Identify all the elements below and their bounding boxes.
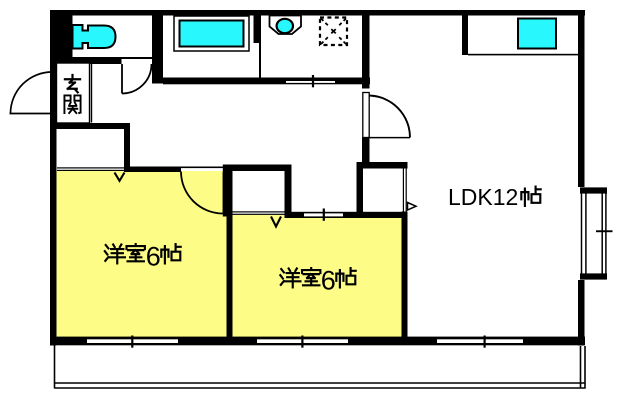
svg-text:LDK12: LDK12	[448, 184, 518, 210]
svg-text:6: 6	[146, 242, 161, 272]
svg-text:6: 6	[321, 266, 336, 296]
